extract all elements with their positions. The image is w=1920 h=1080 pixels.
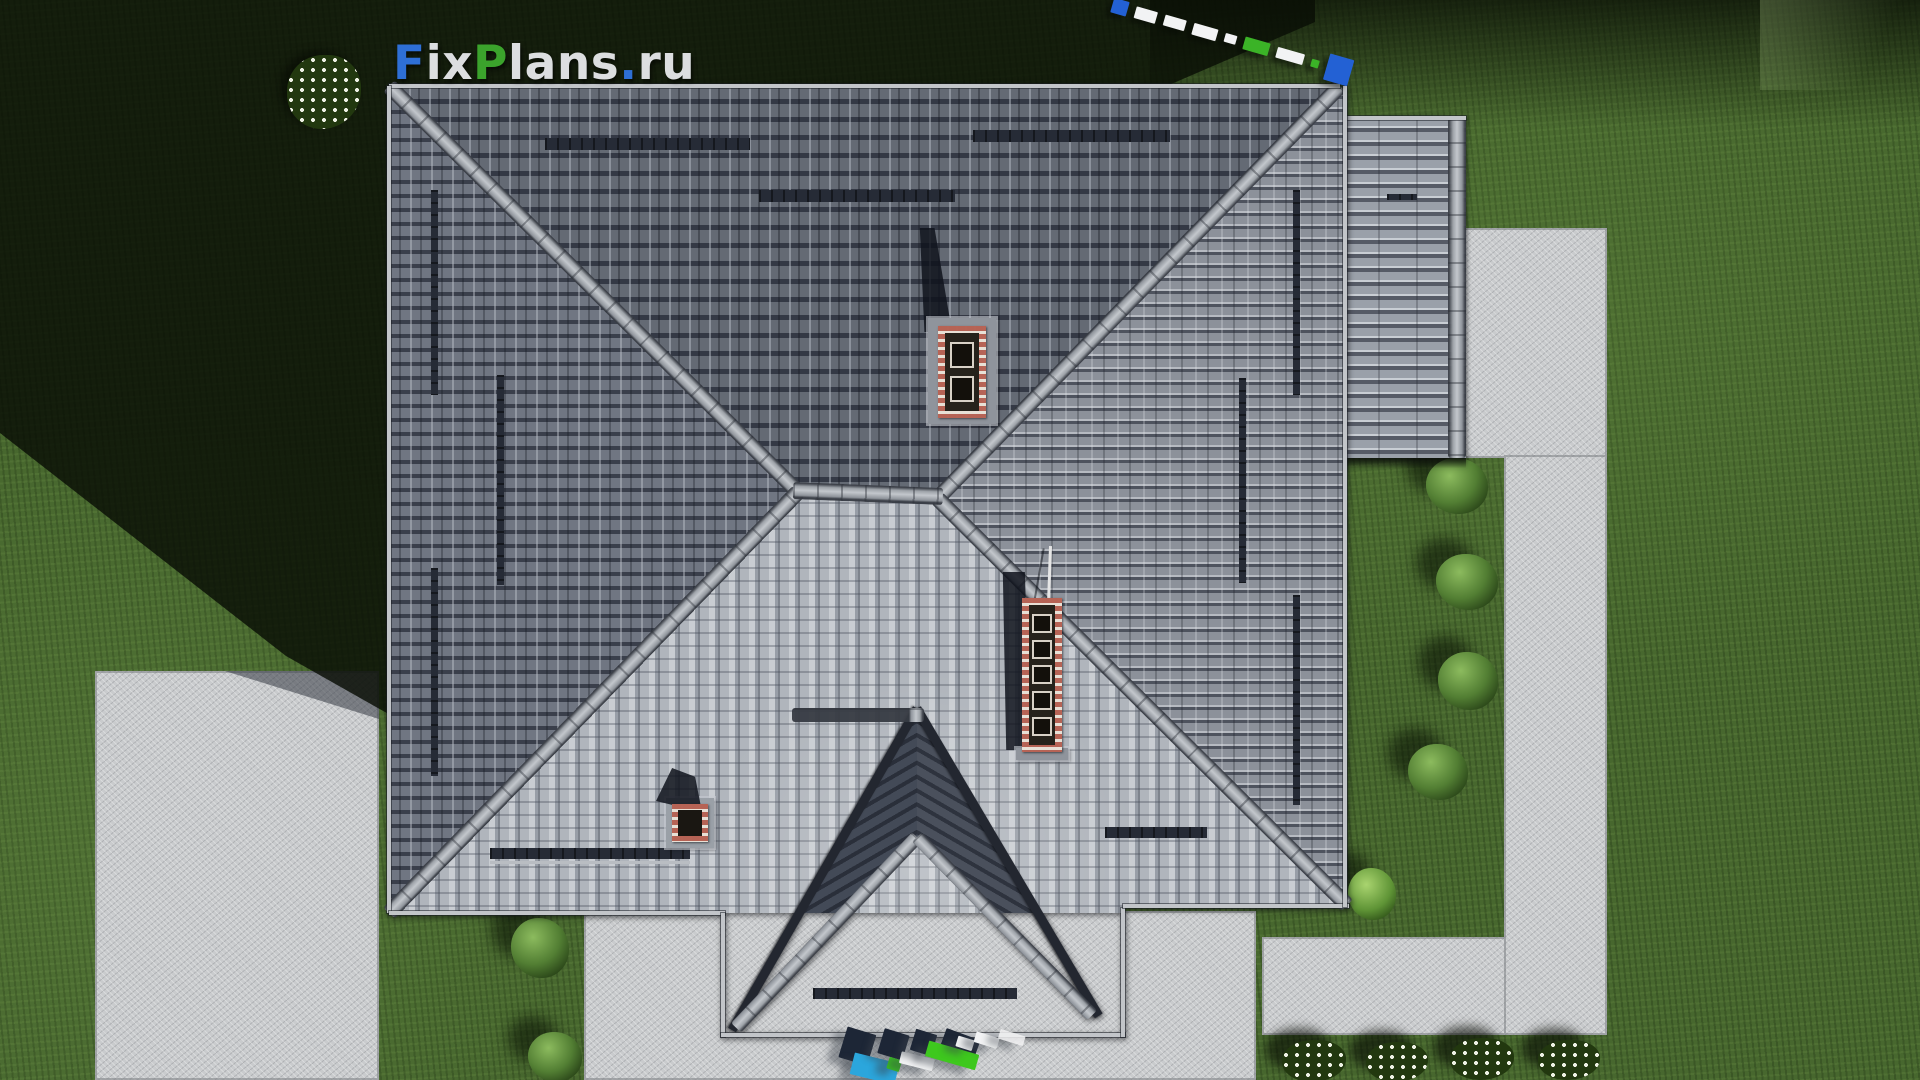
snow-guard-east-2 [1239, 378, 1246, 583]
chimney-large [1022, 598, 1062, 752]
watermark-white-segment [1134, 6, 1158, 24]
watermark-green-segment-small [1310, 58, 1320, 68]
wing-fascia-top [1340, 116, 1466, 120]
main-roof [389, 86, 1347, 913]
chimney-large-flue-5 [1034, 719, 1049, 734]
watermark-white-segment [1163, 15, 1187, 32]
wing-ridge-cap [1448, 118, 1466, 458]
chimney-top [938, 326, 986, 418]
eave-fascia-bottom-right [1123, 904, 1349, 908]
snow-guard-west-3 [431, 568, 438, 776]
snow-guard-west-2 [497, 375, 504, 585]
driveway-left [95, 671, 379, 1080]
flower-cluster-bottom-1 [1282, 1040, 1346, 1080]
snow-guard-wing [1387, 194, 1417, 200]
snow-guard-rail [490, 861, 690, 864]
wing-eave-shadow [1340, 458, 1466, 468]
garage-wing-roof [1340, 118, 1466, 458]
render-scene: FixPlans.ru [0, 0, 1920, 1080]
snow-guard-porch [813, 988, 1017, 999]
flower-cluster-bottom-2 [1366, 1042, 1428, 1080]
snow-guard-south-right [1105, 827, 1207, 838]
watermark-green-segment [1242, 36, 1271, 56]
logo-part-dot: . [619, 36, 637, 91]
small-chimney [672, 804, 708, 842]
flower-cluster-bottom-4 [1538, 1040, 1600, 1080]
fixplans-logo: FixPlans.ru [393, 36, 695, 91]
snow-guard-east-1 [1293, 190, 1300, 395]
snow-guard-north-3 [759, 190, 955, 202]
logo-part-lans: lans [508, 36, 619, 91]
chimney-top-core [945, 333, 979, 411]
lawn-light-patch [1760, 0, 1920, 90]
snow-guard-west-1 [431, 190, 438, 395]
logo-part-f: F [393, 36, 426, 91]
chimney-large-flue-3 [1034, 667, 1049, 682]
bush-bottom-left-1 [511, 918, 569, 978]
watermark-strip-bottom [839, 1027, 1041, 1080]
logo-part-ru: ru [638, 36, 696, 91]
eave-fascia-left [387, 86, 391, 913]
flower-cluster-bottom-3 [1450, 1038, 1514, 1080]
eave-fascia-porch-right [1121, 908, 1125, 1037]
bush-bottom-left-2 [528, 1032, 582, 1080]
hedge-bush-right-2 [1436, 554, 1498, 610]
hedge-bush-right-4 [1408, 744, 1468, 800]
snow-guard-north-2 [973, 130, 1170, 142]
small-chimney-core [678, 810, 702, 836]
hedge-bush-right-3 [1438, 652, 1498, 710]
chimney-large-flue-1 [1034, 616, 1049, 631]
snow-guard-east-3 [1293, 595, 1300, 805]
path-right-lower [1504, 455, 1607, 1035]
path-right-upper [1458, 228, 1607, 458]
eave-fascia-right [1343, 86, 1347, 907]
logo-part-ix: ix [426, 36, 473, 91]
chimney-large-flue-2 [1034, 642, 1049, 657]
snow-guard-north-1 [545, 138, 750, 150]
chimney-large-core [1029, 605, 1055, 745]
watermark-white-segment [1275, 47, 1305, 65]
eave-fascia-bottom-left [389, 911, 725, 915]
eave-fascia-porch-left [721, 913, 725, 1037]
chimney-large-flue-4 [1034, 693, 1049, 708]
watermark-blue-segment [1110, 0, 1130, 17]
porch-ridge-vertical [792, 708, 924, 722]
logo-part-p: P [473, 36, 508, 91]
chimney-top-flue-1 [952, 344, 972, 366]
snow-guard-south-left [490, 848, 690, 859]
bush-near-roof-corner [1348, 868, 1396, 920]
watermark-white-segment [1191, 22, 1218, 40]
chimney-top-flue-2 [952, 378, 972, 400]
watermark-white-segment [1224, 33, 1238, 45]
